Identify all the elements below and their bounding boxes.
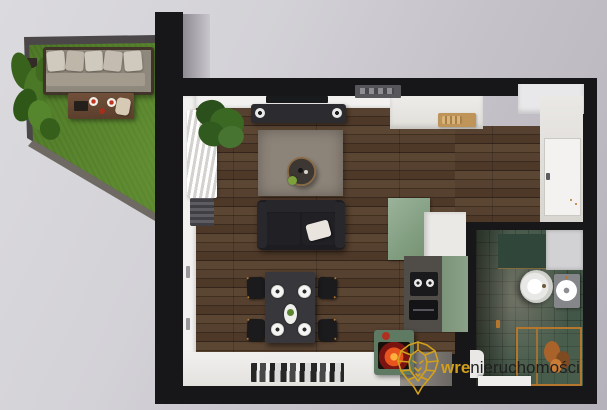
outdoor-sofa-cushion (46, 50, 66, 72)
burner-knob (426, 279, 434, 287)
tv-console (251, 104, 346, 123)
burner-knob (414, 279, 422, 287)
shelf-items (360, 88, 394, 94)
dining-chair (247, 319, 266, 342)
chair-leg-tip (247, 277, 249, 279)
wall-shadow-face (183, 14, 210, 78)
bathroom-door (478, 376, 531, 386)
brand-suffix: nieruchomości (470, 358, 580, 377)
dining-chair (318, 319, 338, 342)
centerpiece-bottle (287, 309, 294, 316)
patio-door-handle (186, 266, 190, 278)
chair-leg-tip (247, 338, 249, 340)
outdoor-coffee-table (68, 93, 134, 119)
washbasin (556, 280, 577, 301)
entry-door (544, 138, 581, 216)
sofa-backrest (265, 200, 337, 212)
wall-right (583, 78, 597, 404)
wall-tv (266, 96, 328, 103)
chair-leg-tip (334, 296, 336, 298)
outdoor-sofa-cushion (103, 50, 123, 72)
wall-left (155, 12, 183, 404)
outdoor-plate (89, 97, 98, 106)
faucet-dot (565, 276, 568, 279)
dinner-plate (271, 285, 284, 298)
kitchen-cabinet-strip (442, 256, 468, 332)
toilet-flush-dot (542, 284, 546, 288)
throw-blanket (115, 97, 132, 116)
door-hinge-dot (575, 203, 577, 205)
sink-divider (413, 309, 434, 311)
cutting-board (438, 113, 476, 127)
outdoor-sofa-cushion (123, 50, 143, 71)
entry-wall-face (540, 96, 583, 222)
bathroom-wall-band (498, 234, 548, 269)
outdoor-sofa-cushion (84, 50, 103, 71)
dinner-plate (271, 323, 284, 336)
chair-leg-tip (334, 277, 336, 279)
chair-leg-tip (334, 338, 336, 340)
red-bowl (99, 108, 105, 114)
chair-leg-tip (247, 319, 249, 321)
patio-door-handle (186, 318, 190, 330)
outdoor-sofa (43, 47, 154, 95)
cooktop-appliance (410, 272, 438, 296)
serving-tray (74, 101, 88, 111)
kitchen-unit (388, 198, 468, 332)
sofa-armrest (257, 202, 267, 248)
entrance-doormat (251, 363, 344, 382)
wall-bottom (155, 386, 597, 404)
door-handle (546, 173, 550, 180)
sofa-seat (267, 213, 300, 245)
plant-on-table (288, 176, 297, 185)
washbasin-cabinet (554, 274, 580, 308)
kitchen-counter-white (424, 212, 466, 262)
kitchen-counter-dark (404, 256, 442, 332)
outdoor-sofa-seat (46, 73, 145, 86)
watermark-text: wrenieruchomości (441, 358, 580, 377)
outdoor-plate (107, 98, 116, 107)
chair-leg-tip (334, 319, 336, 321)
sofa (257, 200, 345, 250)
dinner-plate (298, 323, 311, 336)
bread-slices (442, 116, 462, 124)
kitchen-counter-top (390, 96, 483, 129)
chair-leg-tip (247, 296, 249, 298)
toilet (520, 270, 553, 303)
outdoor-sofa-cushion (65, 50, 85, 71)
dining-chair (247, 277, 266, 300)
dining-chair (318, 277, 338, 300)
table-candle (304, 170, 308, 174)
dinner-plate (298, 285, 311, 298)
wall-shelf (355, 85, 401, 98)
sofa-armrest (335, 202, 345, 248)
dining-table (265, 272, 315, 343)
speaker (255, 108, 265, 118)
speaker (332, 108, 342, 118)
stove-pot (382, 332, 390, 340)
shower-tray (546, 230, 583, 270)
sink-appliance (409, 300, 438, 320)
brand-prefix: wre (441, 358, 470, 377)
curtain-dark (190, 198, 214, 226)
towel-rail (496, 320, 500, 328)
door-hinge-dot (570, 199, 572, 201)
lion-diamond-icon (393, 340, 443, 398)
table-decor-dot (298, 168, 303, 173)
floorplan-render: wrenieruchomości (0, 0, 607, 410)
